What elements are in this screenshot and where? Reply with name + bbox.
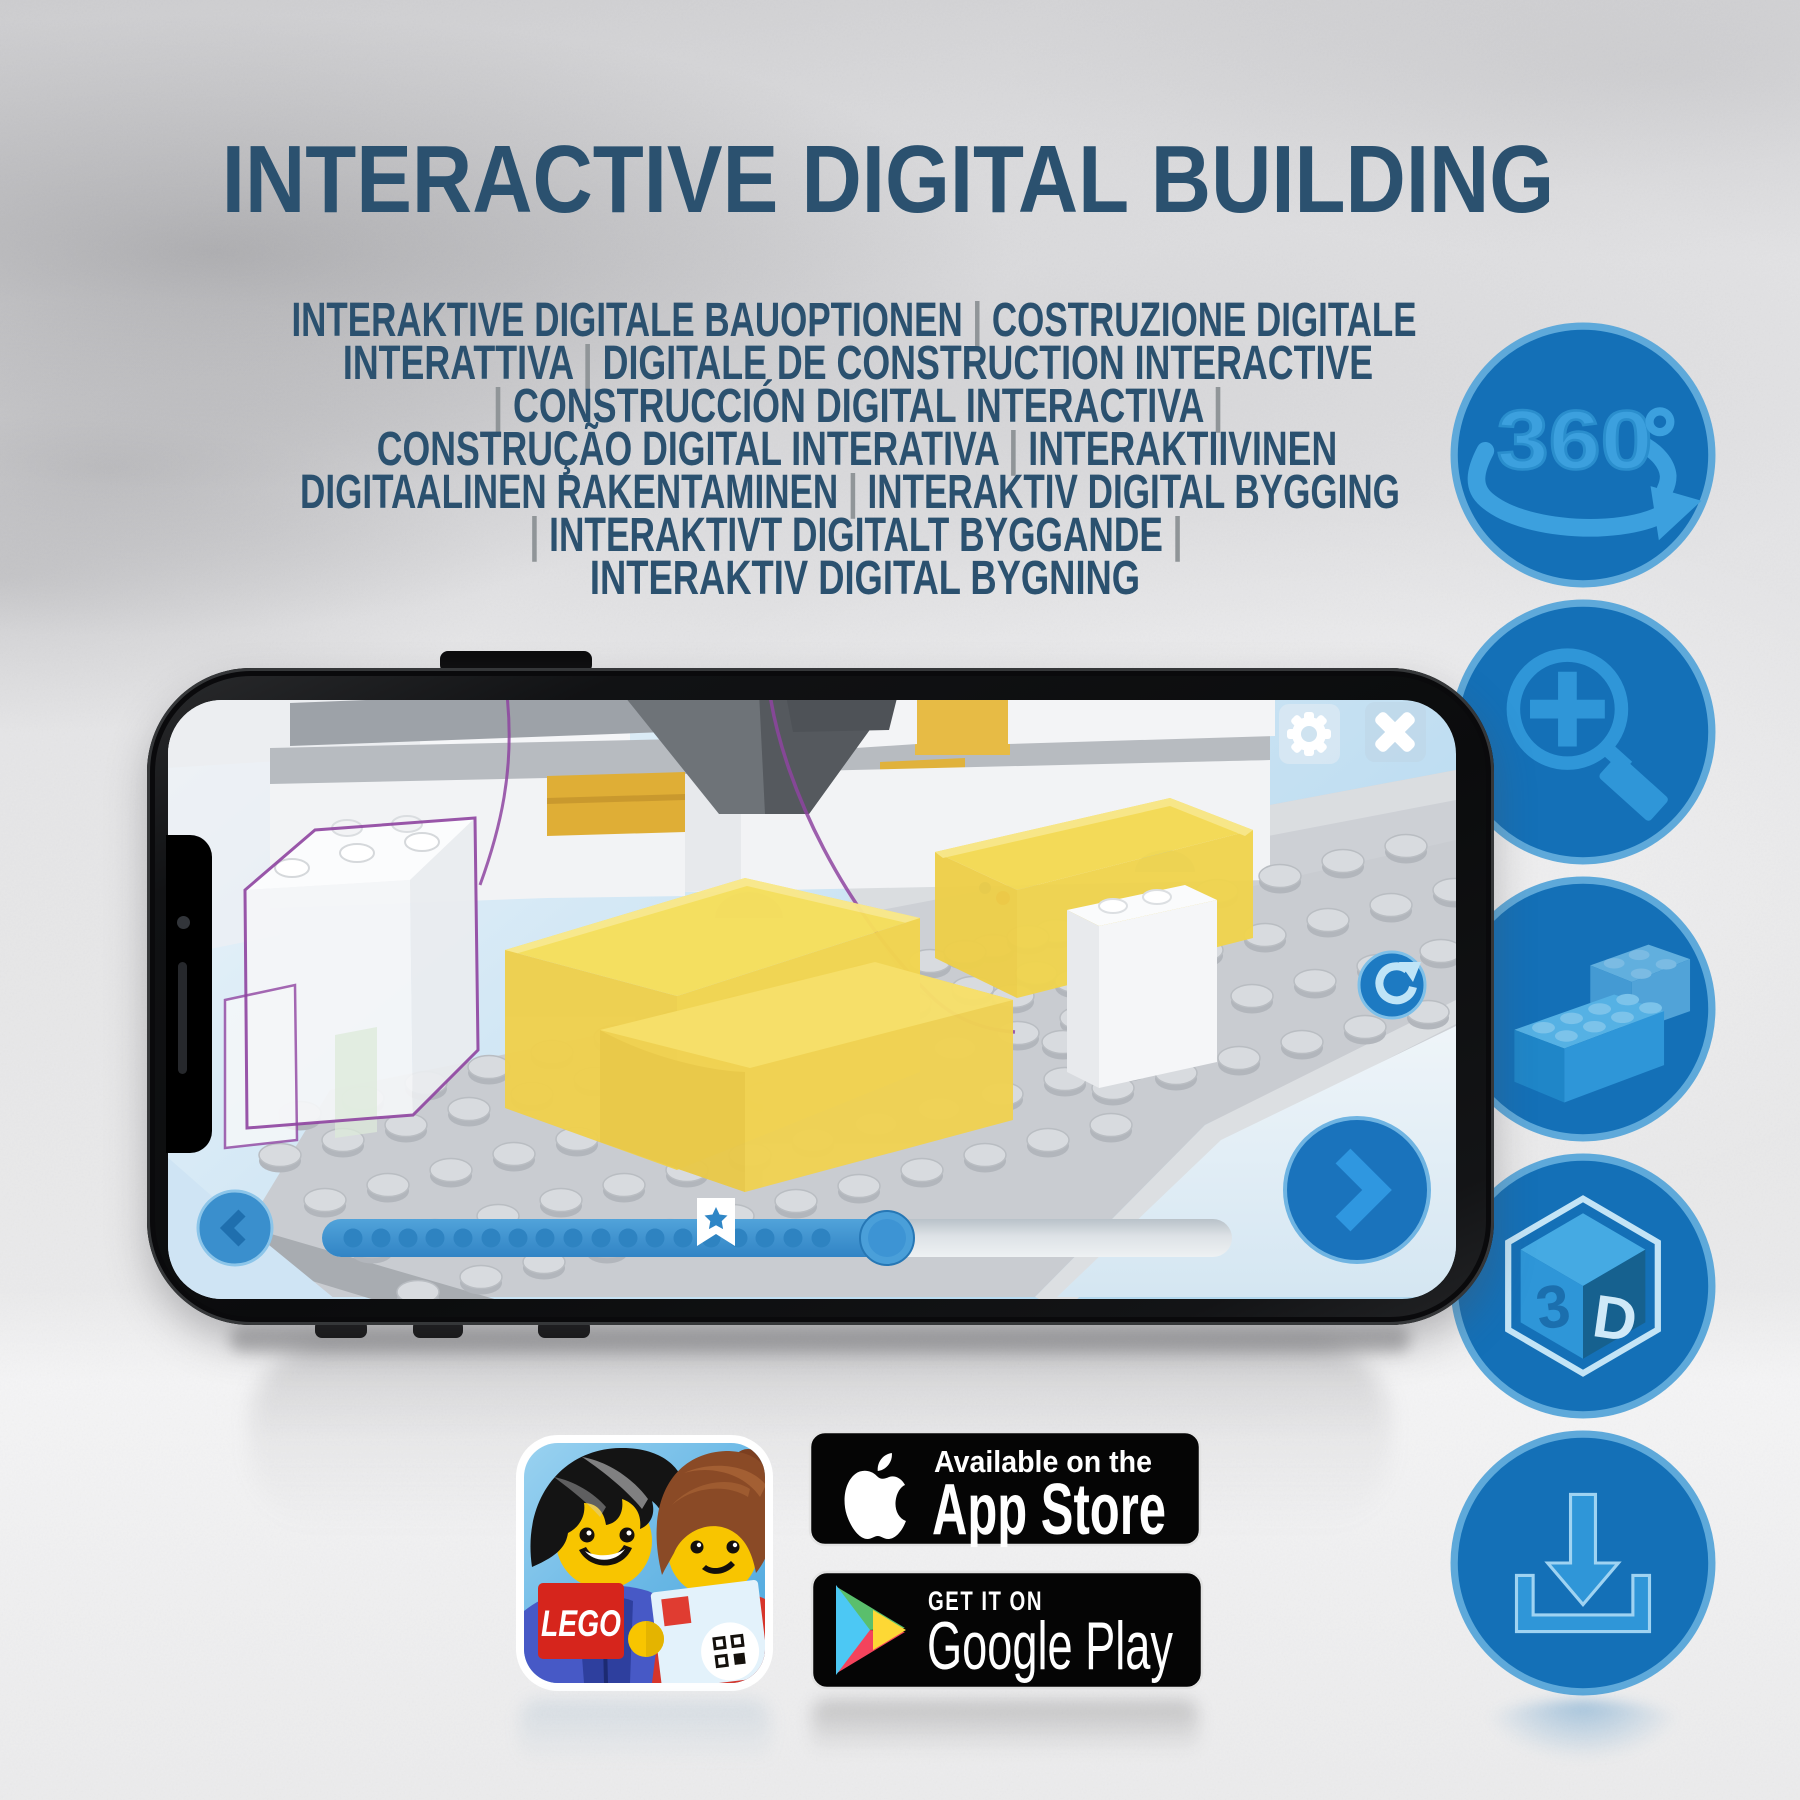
svg-text:360: 360 bbox=[1497, 394, 1653, 487]
svg-text:LEGO: LEGO bbox=[541, 1603, 621, 1644]
svg-text:Google Play: Google Play bbox=[927, 1608, 1173, 1684]
svg-text:App Store: App Store bbox=[932, 1470, 1166, 1547]
